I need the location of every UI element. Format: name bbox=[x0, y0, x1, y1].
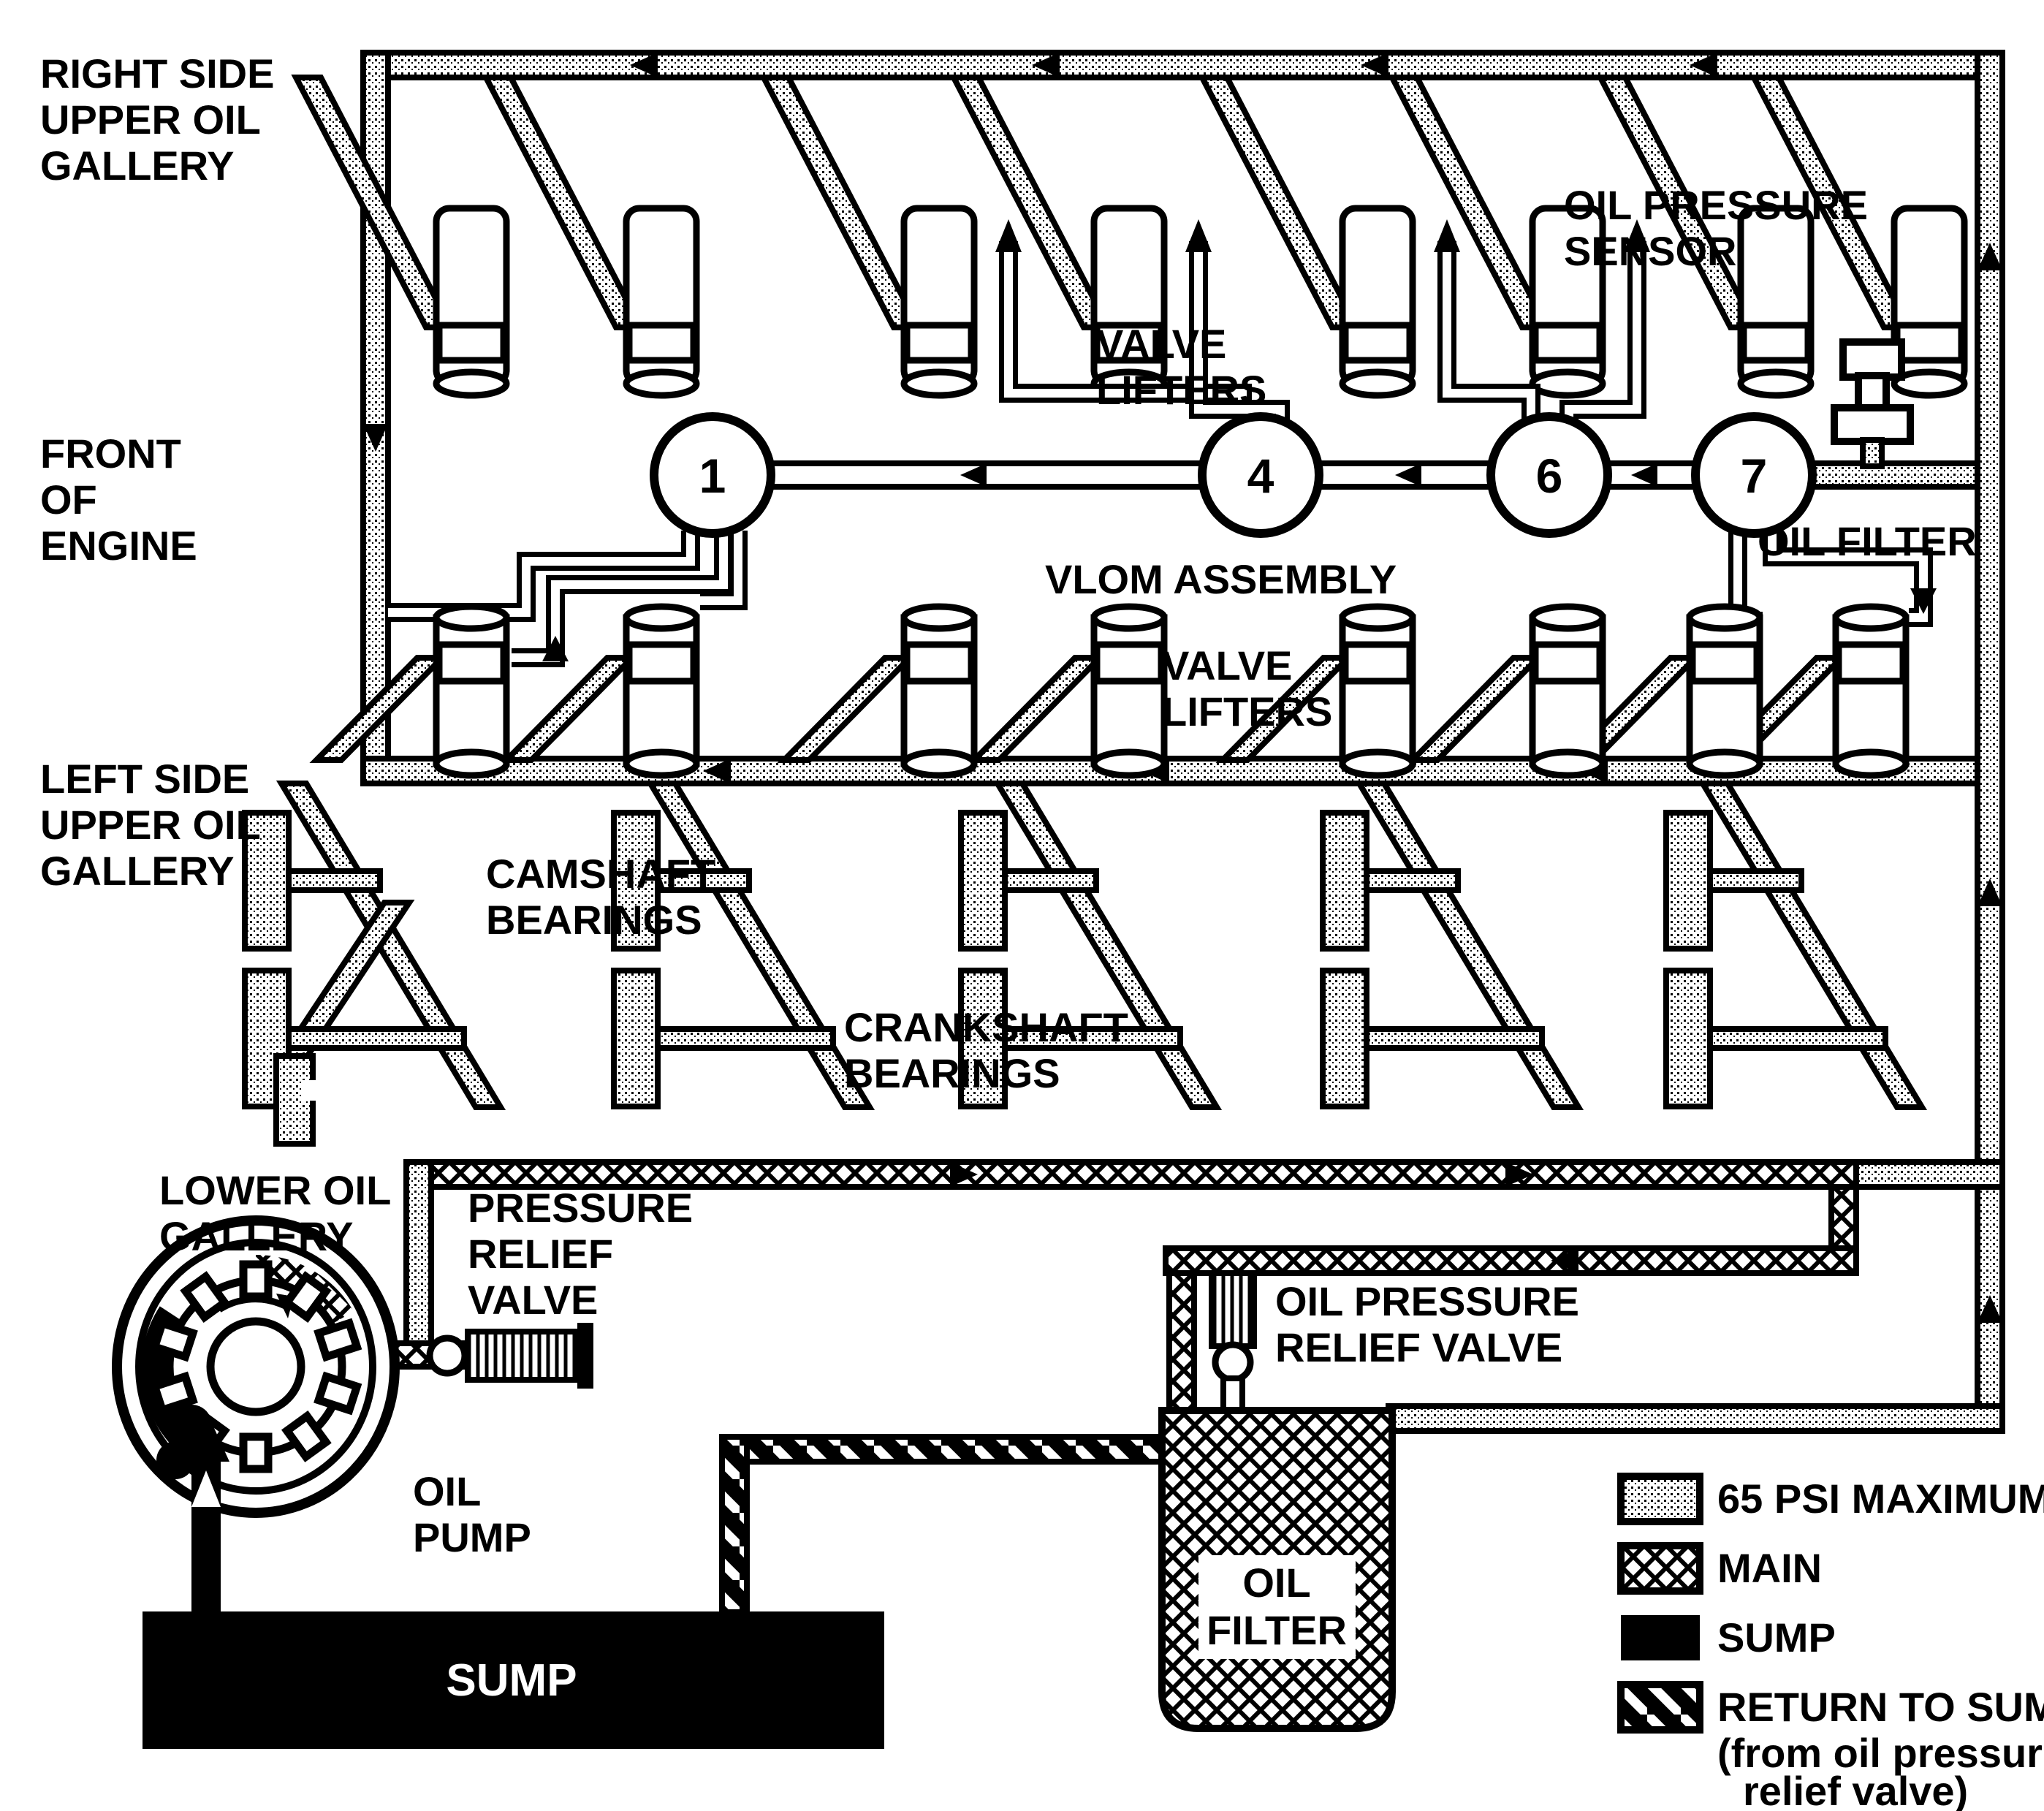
valve-lifters-lower-label-1: VALVE bbox=[1162, 642, 1292, 688]
front-of-engine-label-3: ENGINE bbox=[40, 523, 197, 569]
camshaft-bearings-label-1: CAMSHAFT bbox=[486, 851, 715, 897]
oil-filter-canister: OIL FILTER bbox=[1162, 1411, 1392, 1728]
legend-main-label: MAIN bbox=[1717, 1545, 1822, 1591]
main-swatch bbox=[1621, 1546, 1700, 1591]
right-gallery-label-2: UPPER OIL bbox=[40, 96, 261, 143]
valve-lifter bbox=[1342, 607, 1413, 775]
sump: SUMP bbox=[143, 1611, 884, 1749]
valve-lifter bbox=[1836, 607, 1906, 775]
oil-pump-label-2: PUMP bbox=[413, 1514, 531, 1560]
pressure-relief-valve-label-3: VALVE bbox=[468, 1277, 598, 1323]
valve-lifter bbox=[1532, 607, 1603, 775]
vlom-node-4: 4 bbox=[1202, 417, 1319, 534]
vlom-node-7: 7 bbox=[1695, 417, 1812, 534]
vlom-node-4-label: 4 bbox=[1247, 449, 1274, 503]
valve-lifters-lower-label-2: LIFTERS bbox=[1162, 688, 1332, 734]
main-jog-vertical bbox=[1831, 1187, 1856, 1253]
canvas-background bbox=[0, 0, 2044, 1811]
main-line-vertical bbox=[406, 1162, 431, 1356]
oil-pump-label-1: OIL bbox=[413, 1468, 481, 1514]
oil-filter-canister-label-2: FILTER bbox=[1207, 1607, 1347, 1653]
valve-lifter bbox=[904, 607, 974, 775]
relief-spring bbox=[468, 1332, 577, 1380]
filter-inlet-vertical bbox=[1169, 1273, 1194, 1416]
valve-lifter bbox=[904, 208, 974, 395]
left-gallery-label-1: LEFT SIDE bbox=[40, 756, 249, 802]
oil-filter-line-label: OIL FILTER bbox=[1758, 518, 1977, 564]
legend-sump-label: SUMP bbox=[1717, 1614, 1836, 1660]
oil-pressure-sensor-label-2: SENSOR bbox=[1564, 228, 1737, 274]
oil-pressure-sensor-label-1: OIL PRESSURE bbox=[1564, 182, 1868, 228]
right-side-upper-gallery-pipe bbox=[363, 53, 2002, 77]
valve-lifter bbox=[1094, 607, 1164, 775]
valve-lifter bbox=[626, 208, 696, 395]
oil-pressure-relief-valve-label-2: RELIEF VALVE bbox=[1275, 1324, 1562, 1370]
sump-swatch bbox=[1621, 1615, 1700, 1660]
oil-flow-diagram: 1 4 6 7 bbox=[0, 0, 2044, 1811]
filter-feed-line bbox=[1166, 1248, 1856, 1273]
lower-oil-gallery-label-2: GALLERY bbox=[159, 1213, 353, 1259]
camshaft-bearings-label-2: BEARINGS bbox=[486, 897, 702, 943]
valve-lifter bbox=[1741, 208, 1811, 395]
valve-lifter bbox=[1690, 607, 1760, 775]
main-line-right-stub bbox=[1856, 1162, 2002, 1187]
legend-return-note-2: relief valve) bbox=[1743, 1768, 1968, 1811]
crankshaft-bearings-label-1: CRANKSHAFT bbox=[844, 1004, 1128, 1050]
legend-row-sump: SUMP bbox=[1621, 1614, 1836, 1660]
lower-oil-gallery-label-1: LOWER OIL bbox=[159, 1167, 391, 1213]
vlom-assembly-label: VLOM ASSEMBLY bbox=[1045, 556, 1397, 602]
legend-return-label: RETURN TO SUMP bbox=[1717, 1684, 2044, 1730]
valve-lifter bbox=[1342, 208, 1413, 395]
pressure-relief-valve-label-2: RELIEF bbox=[468, 1231, 613, 1277]
valve-lifters-upper-label-1: VALVE bbox=[1096, 321, 1226, 367]
vlom-node-1: 1 bbox=[654, 417, 771, 534]
legend-65psi-label: 65 PSI MAXIMUM bbox=[1717, 1476, 2044, 1522]
oil-pressure-relief-valve-label-1: OIL PRESSURE bbox=[1275, 1278, 1579, 1324]
vlom-node-7-label: 7 bbox=[1741, 449, 1768, 503]
left-gallery-label-3: GALLERY bbox=[40, 848, 234, 894]
vlom-node-1-label: 1 bbox=[699, 449, 726, 503]
valve-lifter bbox=[436, 208, 506, 395]
legend-row-main: MAIN bbox=[1621, 1545, 1822, 1591]
valve-lifters-upper-label-2: LIFTERS bbox=[1096, 367, 1266, 413]
valve-lifter bbox=[626, 607, 696, 775]
sump-label: SUMP bbox=[446, 1655, 577, 1706]
return-swatch bbox=[1621, 1685, 1700, 1730]
vlom-node-6-label: 6 bbox=[1536, 449, 1563, 503]
right-gallery-label-3: GALLERY bbox=[40, 143, 234, 189]
front-of-engine-label-1: FRONT bbox=[40, 430, 181, 477]
right-gallery-label-1: RIGHT SIDE bbox=[40, 50, 274, 96]
oil-filter-canister-label-1: OIL bbox=[1242, 1560, 1310, 1606]
pressure-relief-valve-label-1: PRESSURE bbox=[468, 1185, 693, 1231]
vlom-node-6: 6 bbox=[1491, 417, 1608, 534]
filter-outlet-line bbox=[1388, 1406, 2002, 1431]
valve-lifter bbox=[436, 607, 506, 775]
psi65-swatch bbox=[1621, 1476, 1700, 1522]
left-gallery-label-2: UPPER OIL bbox=[40, 802, 261, 848]
lower-oil-gallery-stub bbox=[276, 1056, 316, 1144]
legend-row-65psi: 65 PSI MAXIMUM bbox=[1621, 1476, 2044, 1522]
front-of-engine-label-2: OF bbox=[40, 477, 97, 523]
crankshaft-bearings-label-2: BEARINGS bbox=[844, 1050, 1060, 1096]
oil-filter-feed-pipe bbox=[1805, 463, 1977, 487]
main-line-horizontal bbox=[406, 1162, 1856, 1187]
